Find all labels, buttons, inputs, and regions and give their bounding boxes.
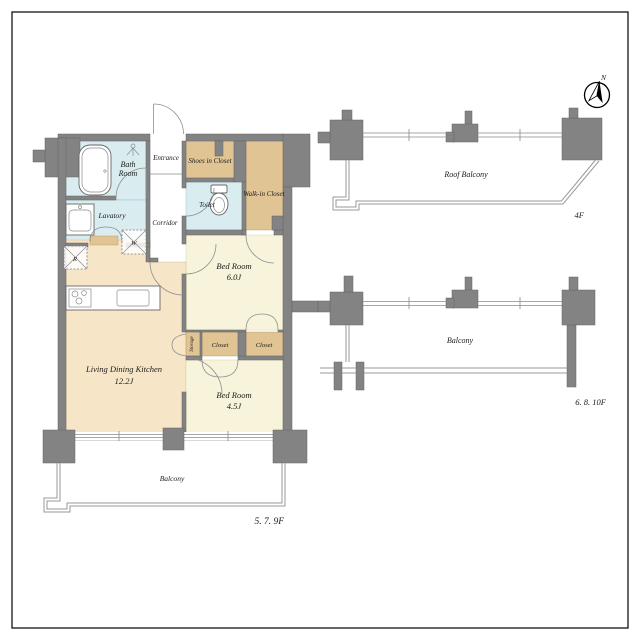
plan-4f-columns [318,108,602,160]
lavatory-label: Lavatory [97,211,126,220]
col-4f-right-tab [569,108,578,118]
ldk-size: 12.2J [115,376,135,386]
plan-6-8-10f: Balcony 6. 8. 10F [318,276,607,407]
wall-shoes-walkin [234,141,246,182]
compass-north-label: N [600,73,607,82]
column-bottom-right [273,430,307,463]
bedroom2-size: 4.5J [227,401,243,411]
kitchen-counter-icon [66,286,160,310]
col-b-left [330,292,363,325]
compass [583,79,612,109]
column-bottom-middle [163,428,184,450]
wall-corridor-east-b [182,216,186,244]
toilet-icon [210,185,228,215]
bath-room-label-1: Bath [120,160,135,169]
floorplan-page: Bath Room Entrance Shoes in Closet Toile… [0,0,640,640]
wall-closet1-closet2 [238,332,246,356]
bath-room-label-2: Room [118,169,138,178]
bedroom1-size: 6.0J [227,272,243,282]
main-floor-label: 5. 7. 9F [254,517,284,527]
wall-stub-right [292,301,318,312]
window-ldk [75,431,163,441]
wall-storage-closet1 [200,332,202,356]
divider-b-right [567,325,576,387]
wall-toilet-bedroom1 [186,230,242,235]
wall-corridor-east-a [182,141,186,188]
plan-4f-floor-label: 4F [575,210,585,220]
closet2-label: Closet [256,342,273,349]
col-4f-left [330,120,363,160]
wall-corridor-ldk-jamb [150,258,158,262]
lavatory-sink-icon [66,204,94,235]
bedroom2-label: Bed Room [216,390,251,400]
wall-right [283,187,292,433]
plan-b-area-label: Balcony [447,336,474,345]
wall-bedroom2-west [182,392,186,433]
plan-4f-balcony-outline [333,160,599,210]
toilet-label: Toilet [199,201,216,209]
refrigerator-label: R [72,256,77,263]
col-b-right [562,290,595,325]
bedroom1-floor [186,235,283,330]
wall-bath-lavatory [66,196,116,200]
col-4f-left-tab [342,110,352,120]
wall-closets-south-b [238,356,283,360]
col-b-left-side-tab [318,301,330,312]
col-b-left-tab [344,276,353,292]
storage-label: Storage [190,335,195,351]
entrance-label: Entrance [152,154,179,162]
entrance-door [154,104,184,134]
closet1-label: Closet [212,342,229,349]
wall-step-walkin [272,216,283,230]
col-4f-right [562,118,602,160]
col-b-right-tab [569,277,578,290]
walkin-closet-label: Walk-in Closet [243,190,285,198]
col-b-mid-foot [446,298,454,308]
col-4f-mid [452,124,478,142]
shoes-closet-label: Shoes in Closet [188,157,232,165]
wall-left [58,138,66,433]
plan-b-floor-label: 6. 8. 10F [575,397,607,407]
corridor-label: Corridor [152,219,178,227]
column-bottom-left [43,430,75,463]
wall-walkin-jamb-b [274,230,283,235]
plan-4f-area-label: Roof Balcony [443,170,488,179]
wall-bedroom1-west [182,274,186,332]
main-balcony-label: Balcony [160,474,185,483]
wall-shoes-toilet [186,178,234,182]
window-bedroom2 [184,431,273,441]
lavatory-step [90,236,118,245]
main-floor-plan: Bath Room Entrance Shoes in Closet Toile… [33,104,318,527]
wall-bedroom1-closets-b [278,330,283,332]
main-balcony-outline [44,463,285,512]
ldk-label: Living Dining Kitchen [85,364,162,374]
divider-b-left-2 [356,362,364,390]
bedroom1-label: Bed Room [216,261,251,271]
floorplan-canvas: Bath Room Entrance Shoes in Closet Toile… [0,0,640,640]
col-b-mid [452,290,478,308]
wall-bedroom1-closets-a [186,330,246,332]
bathtub-icon [79,145,111,195]
washer-label: W [131,240,137,247]
corner-block-top-right [283,134,310,187]
divider-b-left-1 [334,362,342,390]
col-4f-mid-stem [465,111,472,125]
wall-walkin-jamb-a [242,230,246,235]
plan-4f: Roof Balcony 4F [318,108,602,220]
col-4f-left-side-tab [318,132,330,143]
wall-notch-shoes [215,141,223,156]
wall-tab-left [33,150,45,162]
col-b-mid-stem [465,277,472,291]
wall-top-right [186,134,283,141]
